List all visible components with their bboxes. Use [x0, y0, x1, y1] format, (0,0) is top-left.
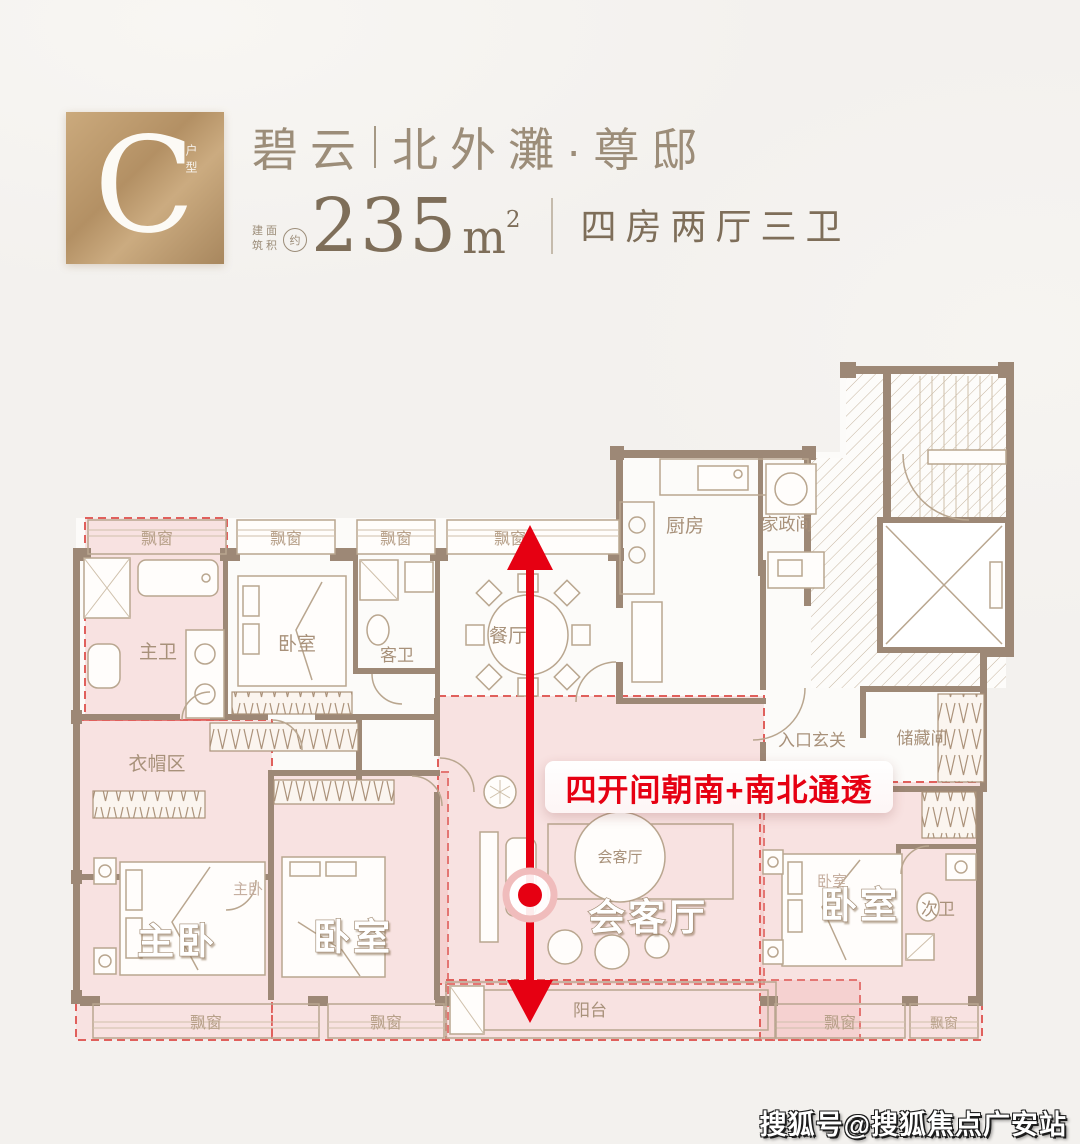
- unit-type-badge: C 户型: [66, 112, 224, 264]
- label-entry: 入口玄关: [778, 731, 846, 750]
- area-unit-letter: m: [462, 210, 506, 264]
- area-prefix-char: 筑: [252, 237, 263, 250]
- highlight-label: 四开间朝南+南北通透: [545, 761, 893, 813]
- label-bedroom-top: 卧室: [278, 633, 316, 655]
- area-prefix-char: 积: [266, 237, 277, 250]
- title-divider: [374, 126, 376, 168]
- label-laundry: 家政间: [762, 515, 813, 534]
- watermark: 搜狐号@搜狐焦点广安站: [760, 1103, 1067, 1142]
- arrow-center-dot: [518, 883, 542, 907]
- area-unit-sup: 2: [506, 207, 521, 233]
- label-bay-window: 飘窗: [270, 530, 302, 548]
- label-living-table: 会客厅: [597, 849, 642, 866]
- area-prefix-char: 建: [252, 222, 263, 235]
- project-title-right: 北外灘·尊邸: [392, 114, 709, 180]
- area-prefix: 建 筑 面 积: [252, 222, 277, 250]
- label-bay-window: 飘窗: [141, 530, 173, 548]
- label-bay-window: 飘窗: [824, 1014, 856, 1032]
- label-master-bedroom-small: 主卧: [233, 881, 263, 898]
- label-living: 会客厅: [588, 897, 708, 938]
- area-divider: [551, 198, 553, 254]
- label-dining: 餐厅: [489, 625, 527, 647]
- label-master-bath: 主卫: [139, 641, 177, 663]
- area-value: 235: [311, 192, 458, 260]
- floor-plan: 飘窗 飘窗 飘窗 飘窗 主卫 卧室 客卫 餐厅 厨房 家政间 入口玄关 储藏间 …: [60, 362, 1020, 1048]
- label-kitchen: 厨房: [666, 515, 704, 537]
- label-bay-window: 飘窗: [380, 530, 412, 548]
- unit-letter: C: [94, 110, 195, 262]
- label-guest-bath: 客卫: [380, 646, 414, 665]
- page-background: C 户型 碧云 北外灘·尊邸 建 筑 面 积 约 235 m2 四房两厅三卫: [0, 0, 1080, 1144]
- layout-description: 四房两厅三卫: [581, 198, 851, 250]
- approx-circle: 约: [283, 228, 307, 252]
- label-storage: 储藏间: [897, 729, 948, 748]
- elevator: [880, 520, 1008, 650]
- unit-side-label: 户型: [183, 144, 200, 178]
- area-prefix-char: 面: [266, 222, 277, 235]
- label-balcony: 阳台: [573, 1001, 607, 1020]
- label-bay-window: 飘窗: [370, 1014, 402, 1032]
- label-master-bedroom: 主卧: [137, 921, 217, 962]
- label-cloakroom: 衣帽区: [128, 753, 185, 775]
- label-bay-window: 飘窗: [190, 1014, 222, 1032]
- label-bay-window: 飘窗: [930, 1015, 958, 1031]
- label-bedroom-2: 卧室: [313, 916, 393, 958]
- project-title-left: 碧云: [252, 114, 368, 180]
- label-second-bath: 次卫: [921, 900, 955, 919]
- area-unit: m2: [462, 209, 520, 260]
- project-title: 碧云 北外灘·尊邸: [252, 116, 709, 178]
- label-bedroom-3: 卧室: [820, 884, 900, 926]
- area-info: 建 筑 面 积 约 235 m2 四房两厅三卫: [252, 186, 851, 260]
